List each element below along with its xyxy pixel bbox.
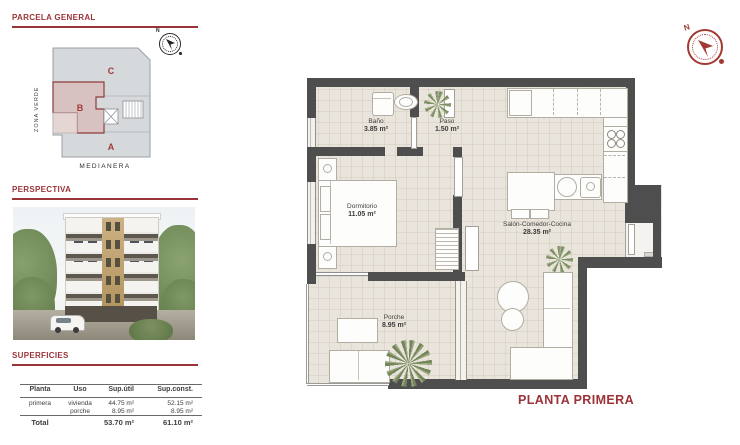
building-facade [65, 217, 159, 314]
balcony-band [124, 292, 158, 301]
balcony-band [124, 232, 158, 241]
col-header-planta: Planta [20, 386, 60, 393]
cell-planta: primera [20, 400, 60, 408]
room-label-paso: Paso 1.50 m² [435, 118, 459, 134]
window-dormitorio-porche [316, 272, 368, 276]
door-leaf-salon [465, 226, 479, 271]
site-compass-icon: N [159, 33, 181, 55]
parcela-heading-rule [12, 26, 198, 28]
chair [530, 209, 549, 219]
cabinet-divider [600, 89, 601, 115]
exterior-mask [587, 268, 740, 398]
table-rule-total [20, 415, 202, 416]
plan-compass-icon: N [687, 29, 723, 65]
car [50, 315, 85, 331]
room-name: Porche [382, 314, 406, 322]
room-label-bano: Baño 3.85 m² [364, 118, 388, 134]
cabinet-divider [604, 177, 625, 178]
window-dormitorio [307, 182, 316, 244]
car-wheel [73, 327, 79, 333]
total-sup-util: 53.70 m² [100, 418, 134, 427]
compass-needle-icon [160, 34, 180, 54]
balcony-band [124, 252, 158, 261]
wall-segment [397, 147, 423, 156]
cell-sup-util: 44.75 m² 8.95 m² [100, 400, 134, 415]
perspectiva-heading-rule [12, 198, 198, 200]
wall-segment [307, 152, 316, 182]
bush-front [129, 319, 173, 340]
cabinet-divider [553, 89, 554, 115]
palm-plant [385, 340, 432, 387]
balcony-band [66, 292, 102, 301]
room-name: Paso [435, 118, 459, 126]
brochure-page: PARCELA GENERAL C B A ZONA VERDE MEDIANE… [0, 0, 740, 445]
uso-porche: porche [60, 408, 100, 416]
zone-c-label: C [108, 66, 115, 76]
room-label-porche: Porche 8.95 m² [382, 314, 406, 330]
compass-dot [719, 59, 724, 64]
cabinet-divider [604, 155, 625, 156]
porch-edge [306, 284, 309, 384]
cooktop-burner [616, 139, 625, 148]
dining-table [507, 172, 555, 211]
total-label: Total [20, 418, 60, 427]
coffee-table-round-small [501, 308, 524, 331]
table-total-row: Total 53.70 m² 61.10 m² [20, 418, 193, 427]
compass-north-letter: N [683, 22, 691, 32]
col-header-uso: Uso [60, 386, 100, 393]
balcony-band [66, 232, 102, 241]
room-area: 1.50 m² [435, 126, 459, 134]
pillow [320, 186, 331, 212]
chair [511, 209, 530, 219]
bathroom-sink-basin [399, 97, 413, 107]
parcela-general-heading: PARCELA GENERAL [12, 13, 96, 22]
wall-segment [307, 78, 316, 118]
room-name: Dormitorio [347, 203, 377, 211]
balcony-band [66, 252, 102, 261]
fridge [509, 90, 532, 116]
balcony-band [124, 272, 158, 281]
const-porche: 8.95 m² [134, 408, 193, 416]
glass-door-salon-porche [455, 281, 467, 380]
zone-a-label: A [108, 142, 115, 152]
total-sup-const: 61.10 m² [134, 418, 193, 427]
sofa [543, 272, 573, 350]
room-area: 8.95 m² [382, 322, 406, 330]
toilet [372, 92, 394, 116]
compass-north-letter: N [156, 28, 160, 34]
plant [546, 246, 573, 273]
medianera-label: MEDIANERA [55, 163, 155, 170]
door-leaf-entry [628, 224, 635, 255]
door-leaf-bano [411, 117, 417, 149]
lamp [323, 252, 332, 261]
col-header-sup-util: Sup.útil [100, 386, 134, 393]
cabinet-divider [577, 89, 578, 115]
sofa-seam [544, 308, 570, 309]
superficies-heading: SUPERFICIES [12, 351, 69, 360]
util-porche: 8.95 m² [100, 408, 134, 416]
sofa-chaise [510, 347, 573, 380]
car-window [56, 318, 71, 323]
building-render-photo [13, 207, 195, 340]
wall-segment [307, 244, 316, 284]
wall-segment [453, 147, 462, 157]
unit-b-annex [53, 113, 77, 133]
wall-segment [368, 272, 465, 281]
wall-segment [653, 223, 661, 260]
table-header-row: Planta Uso Sup.útil Sup.const. [20, 386, 193, 393]
wall-segment [307, 78, 635, 87]
balcony-band [66, 272, 102, 281]
wall-segment [625, 185, 661, 223]
kitchen-sink [557, 177, 577, 197]
porch-bench [329, 350, 390, 383]
pillow [320, 214, 331, 240]
room-area: 28.35 m² [503, 229, 571, 237]
cooktop-burner [607, 130, 616, 139]
wardrobe [435, 228, 459, 270]
cooktop-burner [607, 139, 616, 148]
porch-table [337, 318, 378, 343]
building-center-strip [102, 218, 124, 313]
util-vivienda: 44.75 m² [100, 400, 134, 408]
exterior-mask [307, 386, 389, 390]
table-rule-top [20, 384, 202, 385]
room-area: 11.05 m² [347, 211, 377, 219]
cooktop-burner [616, 130, 625, 139]
room-area: 3.85 m² [364, 126, 388, 134]
appliance-knob [586, 182, 595, 191]
perspectiva-heading: PERSPECTIVA [12, 185, 71, 194]
compass-dot [179, 52, 182, 55]
room-name: Salón-Comedor-Cocina [503, 221, 571, 229]
zona-verde-label: ZONA VERDE [34, 74, 40, 132]
door-leaf-dormitorio [454, 157, 463, 197]
porch-bench-seam [358, 351, 359, 380]
building-strip-windows [106, 222, 111, 308]
cell-sup-const: 52.15 m² 8.95 m² [134, 400, 193, 415]
const-vivienda: 52.15 m² [134, 400, 193, 408]
cell-uso: vivienda porche [60, 400, 100, 415]
uso-vivienda: vivienda [60, 400, 100, 408]
room-name: Baño [364, 118, 388, 126]
col-header-sup-const: Sup.const. [134, 386, 193, 393]
plant [424, 91, 451, 118]
car-wheel [55, 327, 61, 333]
table-data-row: primera vivienda porche 44.75 m² 8.95 m²… [20, 400, 193, 415]
room-label-dormitorio: Dormitorio 11.05 m² [347, 203, 377, 219]
wall-segment [578, 257, 587, 388]
porch-edge [307, 383, 389, 386]
compass-needle-icon [689, 31, 721, 63]
building-strip-windows [115, 222, 120, 308]
zone-b-label: B [77, 103, 84, 113]
room-label-salon: Salón-Comedor-Cocina 28.35 m² [503, 221, 571, 237]
table-rule-header [20, 397, 202, 398]
lamp [323, 164, 332, 173]
toilet-seam [373, 98, 391, 99]
cooktop [603, 126, 628, 152]
wall-segment [307, 147, 385, 156]
superficies-heading-rule [12, 364, 198, 366]
plan-title: PLANTA PRIMERA [518, 393, 634, 407]
wall-segment [578, 257, 662, 268]
